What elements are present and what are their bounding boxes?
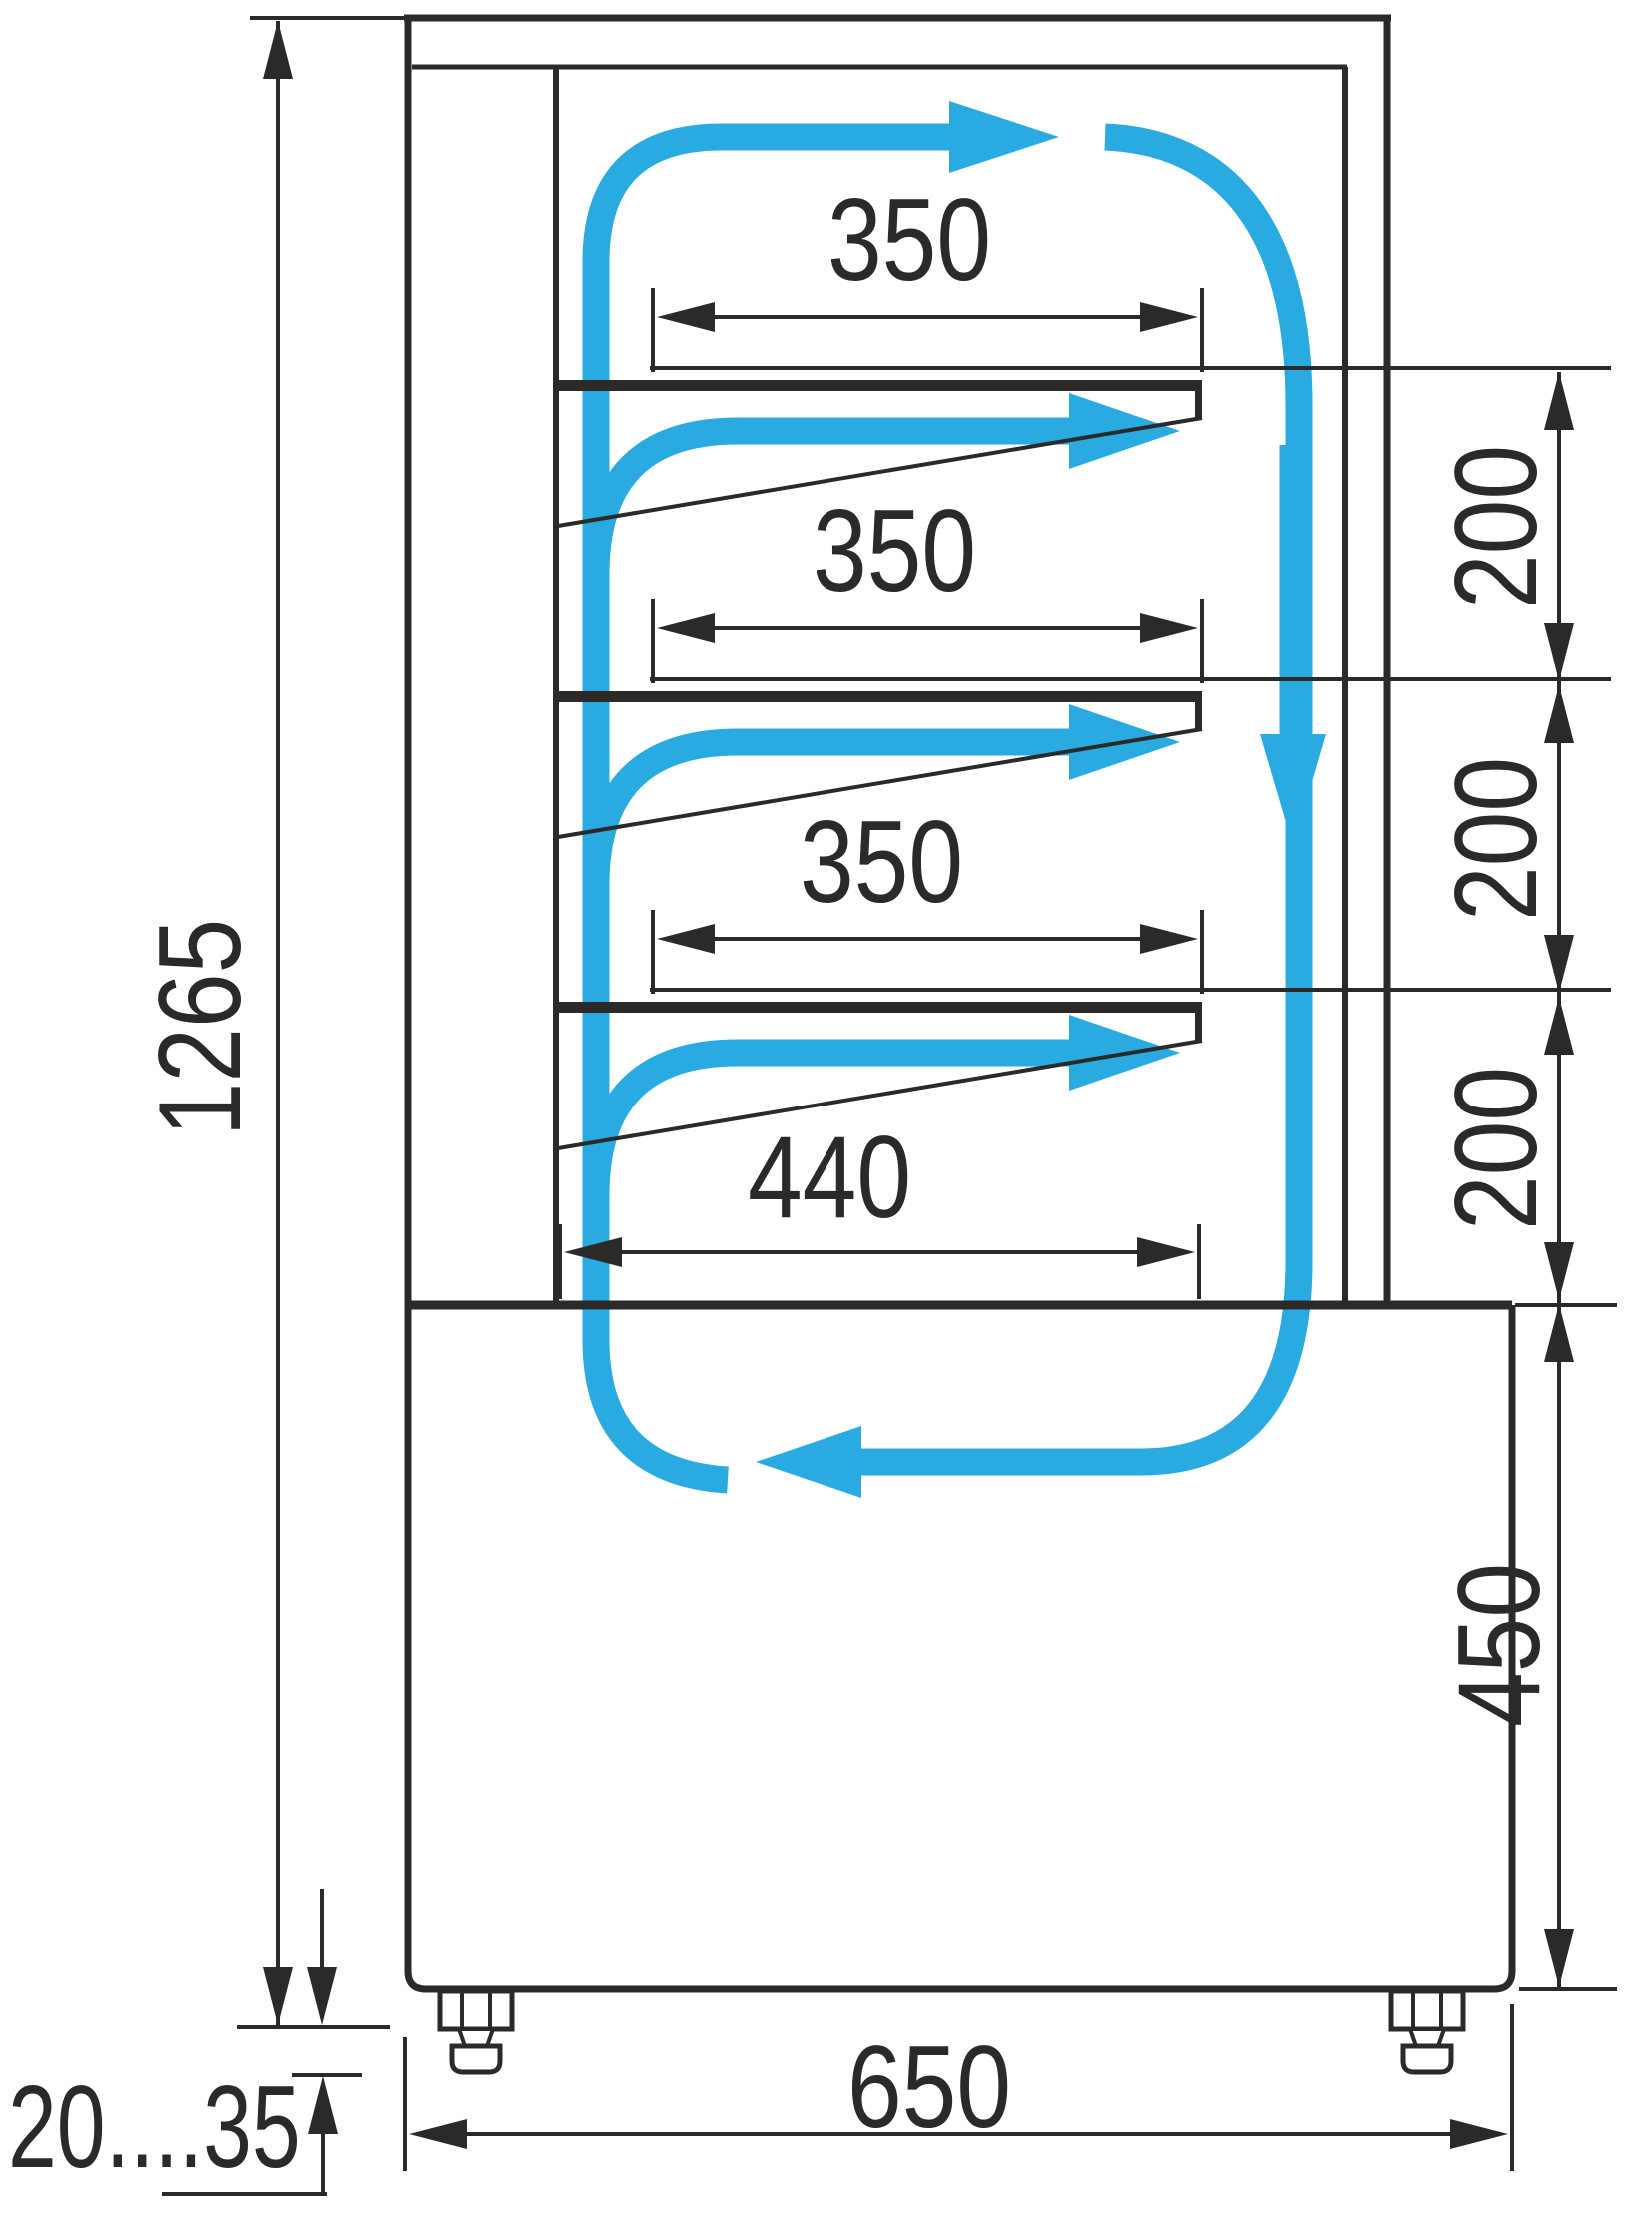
left-foot: [440, 1991, 512, 2072]
dim-200-1-arrow-up-icon: [1544, 372, 1574, 430]
dim-450-arrow-down-icon: [1544, 1929, 1574, 1987]
shelf-2-front-bracket: [1195, 702, 1202, 729]
dimension-labels: 350 350 350 440 650 1265 200 200 200 450…: [8, 174, 1564, 2192]
dim-200-3-arrow-down-icon: [1544, 1242, 1574, 1300]
dim-foot-arrow-down-icon: [307, 1967, 337, 2025]
dim-450-label: 450: [1433, 1563, 1564, 1727]
right-foot-pad: [1403, 2046, 1451, 2072]
left-foot-housing: [440, 1991, 512, 2029]
dim-foot-range-label: 20....35: [8, 2061, 301, 2192]
dim-350-3-arrow-right-icon: [1140, 924, 1198, 954]
dim-350-2-arrow-left-icon: [657, 613, 715, 643]
dim-350-3-arrow-left-icon: [657, 924, 715, 954]
airflow-return-arrowhead-icon: [756, 1426, 861, 1498]
dim-200-1-label: 200: [1430, 445, 1561, 609]
dim-350-1-arrow-right-icon: [1140, 302, 1198, 332]
dim-1265-arrow-bottom-icon: [263, 1967, 293, 2025]
diagram-canvas: 350 350 350 440 650 1265 200 200 200 450…: [0, 0, 1652, 2213]
base-cabinet-outline: [408, 1305, 1512, 1989]
dim-440-arrow-right-icon: [1137, 1237, 1195, 1267]
dim-350-2-arrow-right-icon: [1140, 613, 1198, 643]
shelf-3-deck: [556, 1002, 1202, 1013]
dim-450-arrow-up-icon: [1544, 1304, 1574, 1362]
dim-650-label: 650: [847, 2021, 1011, 2152]
right-foot-housing: [1391, 1991, 1463, 2029]
dim-650-arrow-right-icon: [1450, 2119, 1508, 2149]
airflow-top-arrowhead-icon: [949, 101, 1059, 173]
dimension-linework: [162, 18, 1617, 2194]
left-foot-neck: [459, 2029, 493, 2046]
right-foot: [1391, 1991, 1463, 2072]
dim-440-label: 440: [748, 1111, 911, 1242]
dim-350-2-label: 350: [813, 485, 976, 616]
dim-1265-label: 1265: [134, 919, 265, 1137]
dim-200-2-arrow-up-icon: [1544, 685, 1574, 743]
shelf-2-deck: [556, 691, 1202, 702]
dim-350-1-label: 350: [827, 174, 991, 305]
left-foot-pad: [452, 2046, 500, 2072]
display-case-airflow-diagram: 350 350 350 440 650 1265 200 200 200 450…: [0, 0, 1652, 2213]
dim-foot-arrow-up-icon: [308, 2076, 338, 2134]
dim-200-3-arrow-up-icon: [1544, 997, 1574, 1055]
dim-350-3-label: 350: [800, 796, 963, 927]
shelf-1-deck: [556, 380, 1202, 391]
airflow-down-arrowhead-icon: [1260, 734, 1326, 846]
dim-350-1-arrow-left-icon: [657, 302, 715, 332]
dimension-arrowheads: [263, 21, 1574, 2149]
dim-1265-arrow-top-icon: [263, 21, 293, 79]
dim-650-arrow-left-icon: [409, 2119, 467, 2149]
dim-200-2-arrow-down-icon: [1544, 935, 1574, 993]
shelf-1-front-bracket: [1195, 391, 1202, 418]
dim-200-2-label: 200: [1430, 757, 1561, 921]
shelf-3-front-bracket: [1195, 1013, 1202, 1040]
right-foot-neck: [1410, 2029, 1444, 2046]
dim-200-1-arrow-down-icon: [1544, 623, 1574, 681]
dim-200-3-label: 200: [1430, 1067, 1561, 1230]
